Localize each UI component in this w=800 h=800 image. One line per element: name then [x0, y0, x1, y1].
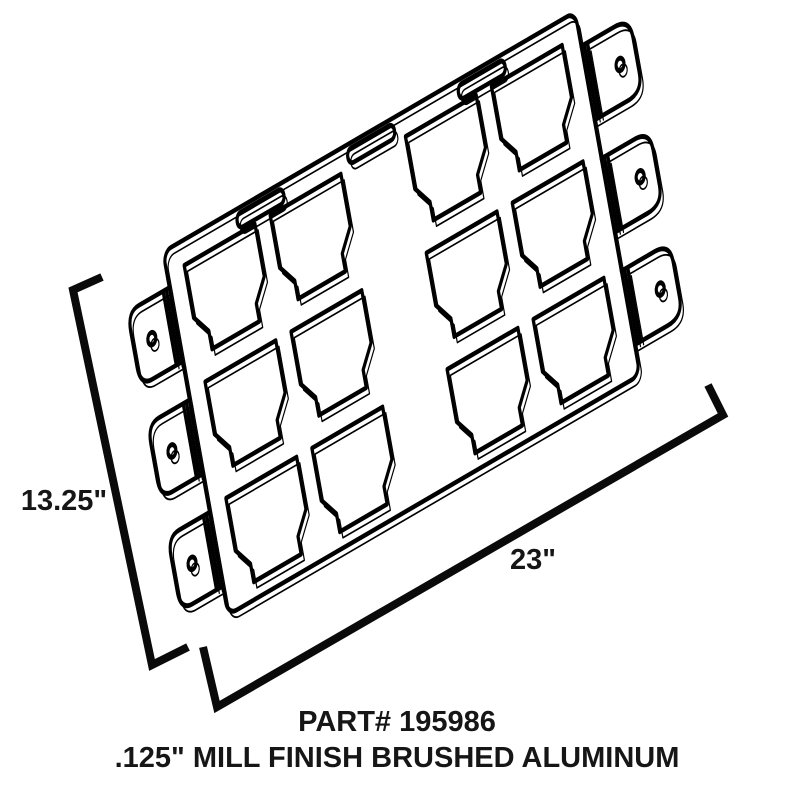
dimension-label-width: 23" [510, 544, 556, 576]
drawing-canvas: 13.25" 23" PART# 195986 .125" MILL FINIS… [0, 0, 800, 800]
part-number-text: PART# 195986 [298, 706, 496, 738]
panel-technical-drawing: 13.25" 23" PART# 195986 .125" MILL FINIS… [0, 0, 800, 800]
material-spec-text: .125" MILL FINISH BRUSHED ALUMINUM [115, 742, 680, 774]
panel-outline-main [121, 0, 688, 640]
dimension-label-height: 13.25" [21, 485, 107, 517]
